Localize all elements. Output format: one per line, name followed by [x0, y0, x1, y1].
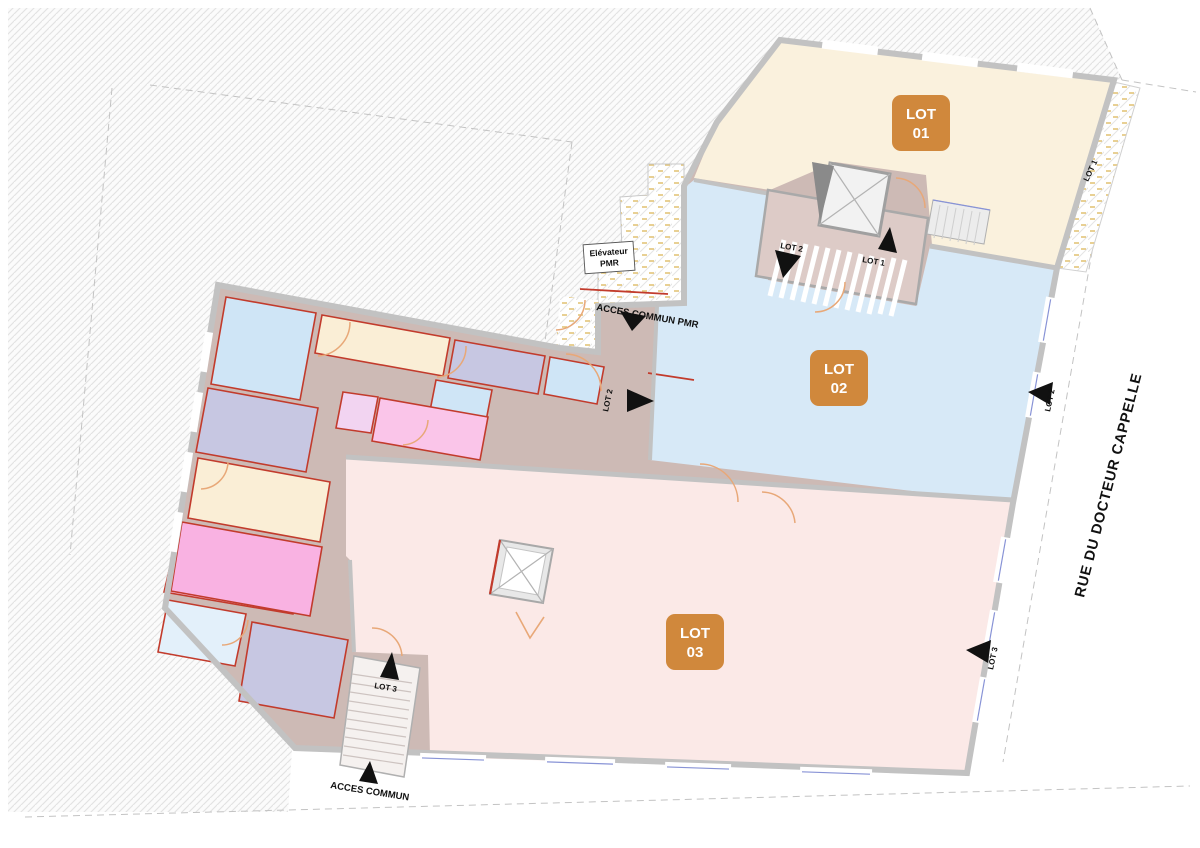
svg-text:PMR: PMR — [600, 257, 620, 268]
svg-text:LOT: LOT — [680, 625, 710, 642]
pmr-ramp-strip — [556, 296, 598, 350]
svg-text:LOT: LOT — [906, 106, 936, 123]
elevator-pmr-label: Elévateur PMR — [583, 241, 635, 273]
floor-plan-svg: LOT 2 LOT 1 LOT 2 LOT 2 LOT 3 LOT 3 LOT … — [0, 0, 1200, 848]
lot-02-badge[interactable]: LOT 02 — [810, 350, 868, 406]
elevator-shaft-top — [812, 162, 890, 236]
rooms-purple — [336, 392, 378, 433]
svg-text:01: 01 — [913, 125, 930, 142]
floor-plan-page: LOT 2 LOT 1 LOT 2 LOT 2 LOT 3 LOT 3 LOT … — [0, 0, 1200, 848]
room — [211, 297, 316, 400]
lot-01-badge[interactable]: LOT 01 — [892, 95, 950, 151]
svg-text:LOT: LOT — [824, 361, 854, 378]
room — [336, 392, 378, 433]
street-name-label: RUE DU DOCTEUR CAPPELLE — [1072, 371, 1145, 599]
svg-text:03: 03 — [687, 644, 704, 661]
acces-commun-label: ACCES COMMUN — [330, 780, 411, 803]
svg-text:02: 02 — [831, 380, 848, 397]
lot-03-badge[interactable]: LOT 03 — [666, 614, 724, 670]
stairwell-bottom — [340, 656, 420, 777]
